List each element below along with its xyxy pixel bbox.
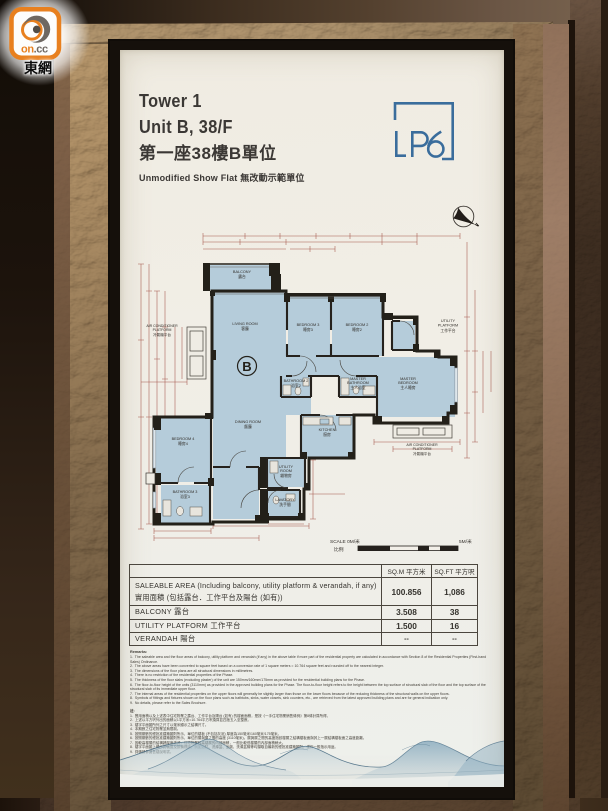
svg-text:BEDROOM: BEDROOM — [398, 381, 418, 385]
svg-text:雜物房: 雜物房 — [280, 473, 292, 478]
svg-text:BEDROOM 4: BEDROOM 4 — [172, 437, 195, 441]
svg-text:洗手間: 洗手間 — [279, 502, 291, 507]
svg-text:KITCHEN: KITCHEN — [319, 428, 336, 432]
svg-text:DINING ROOM: DINING ROOM — [235, 420, 261, 424]
svg-text:睡房3: 睡房3 — [303, 327, 313, 332]
svg-text:睡房2: 睡房2 — [352, 327, 362, 332]
svg-text:主人睡房: 主人睡房 — [400, 385, 415, 390]
svg-text:廚房: 廚房 — [323, 432, 331, 437]
svg-text:BALCONY: BALCONY — [233, 270, 252, 274]
svg-text:PLATFORM: PLATFORM — [413, 447, 432, 451]
svg-text:睡房4: 睡房4 — [178, 441, 188, 446]
svg-text:冷氣機平台: 冷氣機平台 — [153, 332, 171, 337]
svg-text:工作平台: 工作平台 — [440, 328, 455, 333]
svg-text:冷氣機平台: 冷氣機平台 — [413, 451, 431, 456]
svg-text:浴室2: 浴室2 — [291, 383, 301, 388]
svg-text:露台: 露台 — [238, 274, 246, 279]
svg-text:比例: 比例 — [334, 546, 344, 553]
svg-text:BATHROOM 2: BATHROOM 2 — [284, 379, 309, 383]
svg-text:BEDROOM 2: BEDROOM 2 — [346, 323, 369, 327]
svg-text:5M/米: 5M/米 — [459, 538, 472, 545]
svg-text:客廳: 客廳 — [241, 326, 249, 331]
svg-text:PLATFORM: PLATFORM — [153, 328, 172, 332]
svg-text:LIVING ROOM: LIVING ROOM — [232, 322, 257, 326]
svg-text:飯廳: 飯廳 — [244, 424, 252, 429]
svg-text:SCALE 0M/米: SCALE 0M/米 — [330, 538, 360, 545]
svg-text:ROOM: ROOM — [280, 469, 292, 473]
svg-text:B: B — [242, 359, 251, 374]
svg-text:主人浴室: 主人浴室 — [350, 385, 365, 390]
svg-text:on.cc: on.cc — [21, 44, 48, 56]
svg-text:BATHROOM: BATHROOM — [347, 381, 369, 385]
svg-text:BEDROOM 3: BEDROOM 3 — [297, 323, 320, 327]
svg-text:BATHROOM 3: BATHROOM 3 — [173, 490, 198, 494]
svg-text:PLATFORM: PLATFORM — [438, 324, 458, 328]
svg-text:浴室3: 浴室3 — [180, 494, 190, 499]
svg-text:LAVATORY: LAVATORY — [275, 498, 295, 502]
svg-text:UTILITY: UTILITY — [441, 319, 456, 323]
